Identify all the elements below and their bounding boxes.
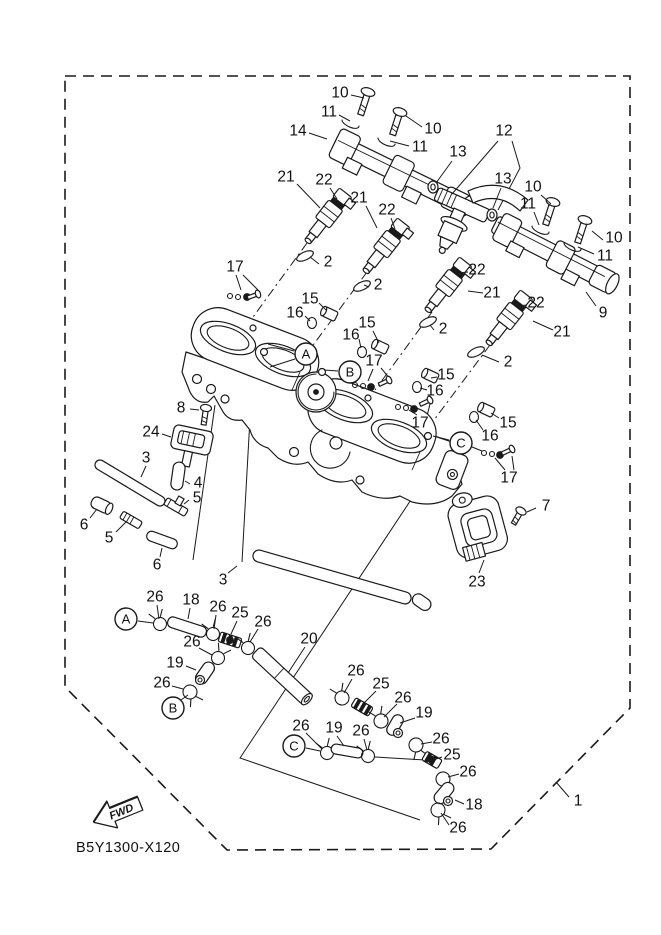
tps-sensor-23 (443, 485, 511, 563)
o-ring-13 (487, 209, 497, 221)
fitting-25 (422, 751, 443, 769)
part-code: B5Y1300-X120 (76, 840, 180, 856)
leader-line-18 (188, 608, 190, 619)
callout-6: 6 (153, 557, 162, 574)
callout-8: 8 (177, 400, 186, 417)
callout-17: 17 (500, 470, 517, 487)
callout-24: 24 (142, 424, 160, 441)
callout-17: 17 (365, 353, 382, 370)
callout-20: 20 (300, 631, 318, 648)
construction-line (240, 462, 436, 820)
throttle-actuator (296, 372, 336, 412)
screw-7 (509, 505, 528, 527)
balloon-leader-B (324, 370, 338, 371)
leader-line-26 (172, 686, 183, 689)
leader-line-25 (364, 691, 376, 703)
callout-15: 15 (437, 367, 454, 384)
callout-2: 2 (504, 354, 513, 371)
leader-line-13 (436, 161, 452, 183)
callout-26: 26 (449, 820, 466, 837)
fuel-injector-21 (300, 187, 357, 251)
leader-line-26 (344, 679, 352, 693)
leader-line-26 (250, 629, 258, 642)
bolt-10 (571, 214, 593, 245)
cap-6 (89, 495, 114, 515)
callout-5: 5 (193, 490, 202, 507)
hose-4 (170, 461, 186, 490)
callout-19: 19 (166, 655, 183, 672)
fwd-label: FWD (108, 802, 136, 823)
callout-22: 22 (378, 202, 395, 219)
callout-26: 26 (146, 589, 163, 606)
callout-13: 13 (449, 144, 466, 161)
callout-14: 14 (289, 123, 307, 140)
callout-16: 16 (426, 383, 443, 400)
leader-line-2 (430, 325, 434, 330)
fuel-injector-21 (358, 217, 415, 281)
callout-7: 7 (542, 498, 551, 515)
joint-5 (119, 511, 142, 529)
callout-19: 19 (415, 705, 432, 722)
callout-10: 10 (331, 85, 349, 102)
leader-line-25 (231, 621, 237, 634)
leader-line-17 (368, 369, 373, 381)
bolt-10 (539, 196, 561, 227)
callout-12: 12 (495, 123, 512, 140)
balloon-leader-C (306, 748, 320, 751)
callout-25: 25 (443, 747, 460, 764)
callout-10: 10 (605, 230, 623, 247)
callout-22: 22 (527, 295, 544, 312)
callout-26: 26 (153, 675, 170, 692)
construction-line (512, 456, 514, 470)
screw-8 (198, 404, 212, 426)
callout-21: 21 (483, 285, 500, 302)
leader-line-6 (90, 509, 97, 518)
leader-line-1 (556, 782, 569, 797)
callout-26: 26 (183, 634, 200, 651)
callout-18: 18 (182, 592, 199, 609)
hose-clamp-26 (180, 682, 202, 706)
callout-1: 1 (574, 793, 583, 810)
leader-line-21 (468, 291, 483, 293)
callout-22: 22 (315, 172, 332, 189)
cap-15 (476, 401, 495, 417)
leader-line-2 (310, 257, 319, 264)
leader-line-14 (309, 133, 327, 139)
callout-3: 3 (219, 572, 228, 589)
callout-26: 26 (292, 718, 309, 735)
leader-line-10 (351, 95, 364, 98)
fitting-25 (218, 632, 242, 648)
callout-11: 11 (321, 104, 337, 121)
hose-19 (330, 743, 363, 758)
joint-19-ring (394, 729, 403, 738)
leader-line-26 (364, 739, 367, 750)
callout-10: 10 (424, 121, 442, 138)
hose-3 (252, 549, 413, 606)
pressure-regulator (428, 214, 469, 259)
leader-line-7 (527, 508, 536, 512)
bolt-10 (354, 86, 376, 117)
callout-2: 2 (324, 254, 333, 271)
leader-line-3 (228, 566, 237, 573)
washer-11 (378, 138, 395, 146)
callout-25: 25 (372, 676, 389, 693)
washer-11 (342, 120, 359, 128)
callout-26: 26 (352, 723, 369, 740)
fitting-25 (351, 698, 373, 717)
cap-6 (145, 530, 178, 550)
leader-line-9 (586, 292, 596, 306)
callout-13: 13 (494, 171, 511, 188)
balloon-letter-A: A (122, 612, 131, 627)
callout-15: 15 (499, 415, 516, 432)
callout-2: 2 (439, 321, 448, 338)
balloon-leader-A (138, 621, 153, 623)
bolt-10 (386, 106, 408, 137)
callout-17: 17 (411, 415, 428, 432)
callout-18: 18 (465, 797, 482, 814)
leader-line-19 (186, 666, 196, 670)
leader-line-10 (592, 231, 603, 240)
callout-6: 6 (80, 517, 89, 534)
leader-line-23 (479, 560, 484, 573)
leader-line-18 (455, 800, 464, 804)
hose-nipple-C (425, 433, 432, 440)
hose-clamp-26 (330, 683, 351, 707)
balloon-letter-C: C (456, 436, 465, 451)
callout-26: 26 (394, 690, 411, 707)
leader-line-21 (366, 206, 377, 228)
callout-26: 26 (347, 663, 364, 680)
joint-19-ring (196, 676, 205, 685)
callout-17: 17 (226, 259, 243, 276)
cap-15 (319, 305, 338, 321)
callout-26: 26 (459, 764, 476, 781)
joint-5 (164, 491, 192, 516)
hose-nipple-A (261, 349, 268, 356)
screw-set-17 (482, 444, 516, 458)
callout-26: 26 (254, 614, 271, 631)
callout-3: 3 (142, 450, 151, 467)
leader-line-4 (185, 481, 190, 484)
construction-line (375, 757, 425, 760)
callout-26: 26 (209, 599, 226, 616)
screw-set-17 (228, 289, 262, 301)
callout-16: 16 (342, 327, 359, 344)
callout-2: 2 (374, 277, 383, 294)
construction-line (243, 275, 259, 291)
balloon-letter-B: B (346, 365, 355, 380)
callout-21: 21 (553, 324, 570, 341)
callout-23: 23 (468, 574, 485, 591)
leader-line-5 (116, 522, 126, 532)
callout-11: 11 (412, 139, 428, 156)
injector-seal-2 (352, 279, 372, 294)
hose-clamp-26 (149, 609, 169, 632)
joint-19-ring (444, 797, 453, 806)
callout-26: 26 (432, 731, 449, 748)
balloon-letter-C: C (289, 739, 298, 754)
o-ring-16 (413, 382, 422, 393)
callout-15: 15 (358, 315, 375, 332)
injector-seal-2 (466, 345, 486, 360)
callout-19: 19 (325, 720, 342, 737)
callout-9: 9 (599, 305, 608, 322)
leader-line-26 (157, 605, 159, 619)
parts-diagram-page: FWD B5Y1300-X120 10111410111312131011101… (0, 0, 661, 935)
hose-3-end (410, 591, 433, 612)
construction-line (242, 418, 250, 562)
callout-21: 21 (277, 169, 294, 186)
leader-line-3 (141, 466, 146, 477)
fwd-arrow: FWD (88, 790, 145, 836)
callout-10: 10 (524, 179, 542, 196)
leader-line-11 (339, 115, 350, 121)
leader-line-21 (533, 321, 553, 330)
balloon-leader-C (472, 447, 482, 451)
callout-25: 25 (231, 605, 248, 622)
callout-5: 5 (105, 530, 114, 547)
balloon-letter-B: B (169, 701, 178, 716)
leader-line-20 (288, 647, 305, 673)
leader-line-26 (306, 733, 322, 749)
balloon-letter-A: A (302, 347, 311, 362)
callout-22: 22 (468, 262, 485, 279)
injector-seal-2 (295, 249, 315, 264)
leader-line-2 (482, 355, 499, 362)
callout-11: 11 (520, 196, 536, 213)
callout-16: 16 (481, 428, 498, 445)
leader-line-26 (199, 648, 212, 655)
callout-15: 15 (301, 291, 318, 308)
leader-line-8 (190, 409, 199, 410)
exploded-parts-diagram: FWD B5Y1300-X120 10111410111312131011101… (0, 0, 661, 935)
leader-line-17 (236, 275, 241, 290)
callout-21: 21 (350, 190, 367, 207)
hose-20 (251, 646, 314, 706)
leader-line-11 (390, 141, 409, 146)
leader-line-5 (184, 500, 189, 504)
leader-line-17 (495, 458, 505, 470)
leader-line-10 (406, 116, 422, 127)
washer-11 (532, 226, 549, 234)
leader-line-11 (534, 212, 539, 225)
leader-line-24 (162, 434, 171, 437)
callout-16: 16 (286, 305, 303, 322)
callout-11: 11 (597, 248, 613, 265)
